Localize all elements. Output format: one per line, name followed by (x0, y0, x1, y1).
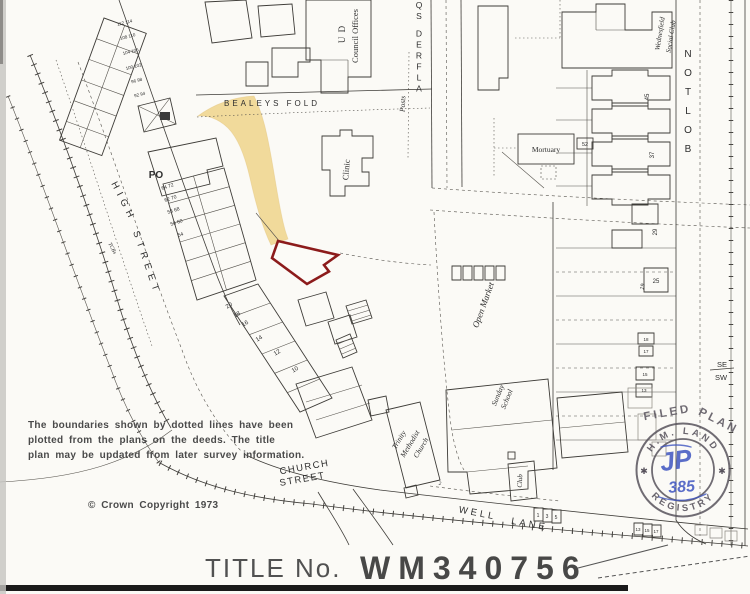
filed-plan-document: BEALEYS FOLDHIGHSTREETCHURCHSTREETWELLLA… (0, 0, 750, 594)
title-number: WM340756 (360, 550, 588, 586)
map-label-no-1: 1 (537, 513, 540, 519)
title-plan-map: BEALEYS FOLDHIGHSTREETCHURCHSTREETWELLLA… (0, 0, 750, 594)
note-line-3: plan may be updated from later survey in… (28, 450, 304, 461)
map-label-no-13: 13 (641, 388, 647, 393)
map-label-no-37: 37 (650, 151, 656, 158)
map-label-no-2: 2 (439, 481, 442, 487)
map-label-sw: SW (715, 373, 728, 382)
handwritten-monogram: JP (658, 443, 694, 477)
title-rule-bar (0, 585, 628, 591)
map-label-no-5: 5 (555, 515, 558, 521)
stamp-star-left-icon: ✱ (640, 466, 648, 476)
map-label-mortuary: Mortuary (532, 145, 561, 154)
map-label-no-29: 29 (653, 228, 659, 235)
map-label-no-3: 3 (546, 514, 549, 520)
map-label-ud: U D (337, 25, 347, 43)
scan-edge (0, 0, 6, 594)
map-label-po: PO (149, 170, 164, 181)
map-label-bealeys-fold: BEALEYS FOLD (224, 99, 320, 108)
map-label-posts: Posts (398, 95, 408, 113)
map-label-no-45: 45 (645, 93, 651, 100)
note-line-1: The boundaries shown by dotted lines hav… (28, 420, 293, 431)
map-label-no-13w: 13 (635, 527, 641, 532)
map-label-no-17: 17 (643, 349, 649, 354)
map-label-no-15w: 15 (644, 528, 650, 533)
note-line-2: plotted from the plans on the deeds. The… (28, 435, 275, 446)
map-label-clinic: Clinic (340, 159, 352, 181)
map-label-no-18b: 18 (643, 337, 649, 342)
handwritten-number: 385 (668, 478, 697, 497)
map-label-council-offices: Council Offices (350, 9, 360, 63)
map-label-se: SE (717, 360, 727, 369)
map-label-no-25: 25 (653, 279, 660, 285)
map-label-club: Club (516, 473, 525, 488)
title-label: TITLE No. (205, 553, 341, 583)
map-label-no-15: 15 (642, 372, 648, 377)
map-label-no-52: 52 (582, 142, 588, 148)
map-label-no-17w: 17 (653, 529, 659, 534)
crown-copyright: © Crown Copyright 1973 (88, 500, 219, 511)
stamp-star-right-icon: ✱ (718, 466, 726, 476)
